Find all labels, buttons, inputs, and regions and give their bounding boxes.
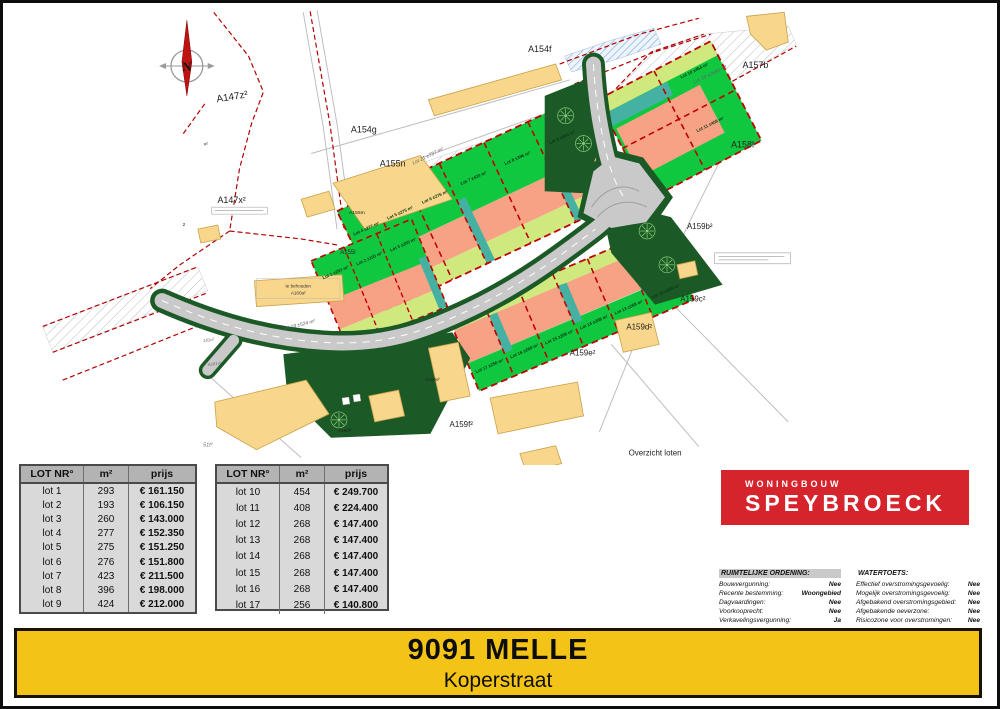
cell-m2: 260	[84, 512, 129, 526]
cell-lot: lot 3	[21, 512, 84, 526]
map-label: A160x²	[425, 377, 440, 382]
legend-watertoets: WATERTOETS: Effectief overstromingsgevoe…	[856, 569, 980, 625]
cell-prijs: € 212.000	[129, 598, 195, 612]
table-row: lot 7 423 € 211.500	[21, 569, 195, 583]
table-body: lot 10 454 € 249.700 lot 11 408 € 224.40…	[217, 484, 387, 614]
legend-value: Nee	[829, 607, 841, 616]
table-row: lot 15 268 € 147.400	[217, 565, 387, 581]
cell-prijs: € 152.350	[129, 527, 195, 541]
legend-row: Mogelijk overstromingsgevoelig: Nee	[856, 589, 980, 598]
map-label: A155n	[380, 158, 406, 168]
legend-label: Dagvaardingen:	[719, 598, 766, 607]
legend-rows: Effectief overstromingsgevoelig: Nee Mog…	[856, 580, 980, 625]
cell-m2: 268	[280, 549, 325, 565]
cell-m2: 423	[84, 569, 129, 583]
map-label: A157b	[743, 60, 769, 70]
legend-value: Woongebied	[802, 589, 841, 598]
table-header: LOT NR° m² prijs	[217, 466, 387, 484]
col-m2: m²	[84, 466, 129, 482]
cell-m2: 256	[280, 597, 325, 613]
map-label: A154g	[351, 125, 377, 135]
cell-prijs: € 147.400	[325, 533, 387, 549]
cell-prijs: € 151.250	[129, 541, 195, 555]
cell-m2: 293	[84, 484, 129, 498]
legend-value: Nee	[829, 598, 841, 607]
cell-prijs: € 140.800	[325, 597, 387, 613]
cell-lot: lot 2	[21, 498, 84, 512]
table-row: lot 16 268 € 147.400	[217, 581, 387, 597]
col-lot-nr: LOT NR°	[21, 466, 84, 482]
legend-row: Verkavelingsvergunning: Ja	[719, 616, 841, 625]
address-banner: 9091 MELLE Koperstraat	[14, 628, 982, 698]
cell-lot: lot 14	[217, 549, 280, 565]
logo-line-woningbouw: WONINGBOUW	[745, 479, 969, 489]
legend-rows: Bouwvergunning: Nee Recente bestemming: …	[719, 580, 841, 625]
cell-m2: 268	[280, 565, 325, 581]
legend-value: Nee	[829, 580, 841, 589]
cell-prijs: € 151.800	[129, 555, 195, 569]
legend-title: WATERTOETS:	[856, 569, 980, 578]
cell-lot: lot 9	[21, 598, 84, 612]
legend-label: Afgebakend overstromingsgebied:	[856, 598, 956, 607]
cell-m2: 454	[280, 484, 325, 500]
banner-title: 9091 MELLE	[17, 634, 979, 667]
cell-lot: lot 1	[21, 484, 84, 498]
legend-value: Nee	[968, 607, 980, 616]
cell-prijs: € 249.700	[325, 484, 387, 500]
cell-prijs: € 147.400	[325, 565, 387, 581]
table-body: lot 1 293 € 161.150 lot 2 193 € 106.150 …	[21, 484, 195, 612]
legend-row: Recente bestemming: Woongebied	[719, 589, 841, 598]
legend-row: Dagvaardingen: Nee	[719, 598, 841, 607]
legend-row: Voorkooprecht: Nee	[719, 607, 841, 616]
table-row: lot 5 275 € 151.250	[21, 541, 195, 555]
table-row: lot 11 408 € 224.400	[217, 500, 387, 516]
plan-sheet: A154fA157bA147z²A154gA155nA158lA147x²A15…	[0, 0, 1000, 709]
cell-m2: 396	[84, 583, 129, 597]
legend-ruimtelijke-ordening: RUIMTELIJKE ORDENING: Bouwvergunning: Ne…	[719, 569, 841, 625]
map-label: A159c²	[680, 295, 706, 304]
legend-value: Nee	[968, 616, 980, 625]
table-header: LOT NR° m² prijs	[21, 466, 195, 484]
table-row: lot 8 396 € 198.000	[21, 583, 195, 597]
map-label: te behouden	[286, 284, 312, 289]
col-m2: m²	[280, 466, 325, 482]
legend-label: Mogelijk overstromingsgevoelig:	[856, 589, 950, 598]
legend-row: Afgebakende oeverzone: Nee	[856, 607, 980, 616]
map-label: A160f²	[338, 428, 352, 433]
map-label: 2	[183, 222, 186, 228]
cell-prijs: € 147.400	[325, 581, 387, 597]
map-label: A160a²	[291, 291, 306, 296]
cell-m2: 268	[280, 581, 325, 597]
map-label: A159b²	[687, 222, 713, 231]
cell-m2: 277	[84, 527, 129, 541]
map-label: A147x²	[217, 195, 245, 205]
legend-value: Nee	[968, 598, 980, 607]
cell-prijs: € 147.400	[325, 549, 387, 565]
legend-label: Recente bestemming:	[719, 589, 783, 598]
map-label: 51t²	[203, 443, 213, 449]
cell-m2: 193	[84, 498, 129, 512]
cell-lot: lot 4	[21, 527, 84, 541]
col-prijs: prijs	[325, 466, 387, 482]
cell-prijs: € 211.500	[129, 569, 195, 583]
legend-value: Ja	[834, 616, 841, 625]
map-label: N	[182, 59, 192, 74]
cell-lot: lot 11	[217, 500, 280, 516]
map-label: A155l	[340, 250, 355, 256]
logo-line-speybroeck: SPEYBROECK	[745, 490, 969, 517]
cell-lot: lot 6	[21, 555, 84, 569]
map-label: A159d²	[626, 322, 652, 331]
table-row: lot 10 454 € 249.700	[217, 484, 387, 500]
legend-label: Verkavelingsvergunning:	[719, 616, 791, 625]
table-row: lot 2 193 € 106.150	[21, 498, 195, 512]
legend-row: Effectief overstromingsgevoelig: Nee	[856, 580, 980, 589]
legend-label: Bouwvergunning:	[719, 580, 770, 589]
legend-row: Bouwvergunning: Nee	[719, 580, 841, 589]
cell-lot: lot 8	[21, 583, 84, 597]
cell-m2: 408	[280, 500, 325, 516]
table-row: lot 6 276 € 151.800	[21, 555, 195, 569]
legend-value: Nee	[968, 589, 980, 598]
table-row: lot 1 293 € 161.150	[21, 484, 195, 498]
cell-lot: lot 7	[21, 569, 84, 583]
site-plan-map: A154fA157bA147z²A154gA155nA158lA147x²A15…	[3, 3, 997, 465]
company-logo: WONINGBOUW SPEYBROECK	[721, 470, 969, 525]
map-label: A159f²	[450, 420, 474, 429]
legend-label: Effectief overstromingsgevoelig:	[856, 580, 949, 589]
cell-m2: 424	[84, 598, 129, 612]
legend-title: RUIMTELIJKE ORDENING:	[719, 569, 841, 578]
cell-lot: lot 12	[217, 516, 280, 532]
cell-lot: lot 17	[217, 597, 280, 613]
legend-label: Voorkooprecht:	[719, 607, 763, 616]
cell-prijs: € 198.000	[129, 583, 195, 597]
cell-prijs: € 106.150	[129, 498, 195, 512]
cell-prijs: € 147.400	[325, 516, 387, 532]
cell-m2: 275	[84, 541, 129, 555]
col-prijs: prijs	[129, 466, 195, 482]
map-label: A154f	[528, 44, 552, 54]
cell-m2: 268	[280, 533, 325, 549]
table-row: lot 3 260 € 143.000	[21, 512, 195, 526]
map-label: A155m	[349, 210, 365, 216]
table-row: lot 13 268 € 147.400	[217, 533, 387, 549]
table-row: lot 9 424 € 212.000	[21, 598, 195, 612]
cell-lot: lot 15	[217, 565, 280, 581]
map-label: v²	[204, 142, 208, 148]
map-label: Overzicht loten	[629, 449, 682, 458]
cell-m2: 276	[84, 555, 129, 569]
cell-lot: lot 16	[217, 581, 280, 597]
price-table-lots-10-17: LOT NR° m² prijs lot 10 454 € 249.700 lo…	[215, 464, 389, 611]
legend-value: Nee	[968, 580, 980, 589]
legend-label: Risicozone voor overstromingen:	[856, 616, 952, 625]
table-row: lot 12 268 € 147.400	[217, 516, 387, 532]
cell-lot: lot 10	[217, 484, 280, 500]
col-lot-nr: LOT NR°	[217, 466, 280, 482]
cell-m2: 268	[280, 516, 325, 532]
banner-subtitle: Koperstraat	[17, 669, 979, 693]
table-row: lot 14 268 € 147.400	[217, 549, 387, 565]
cell-prijs: € 161.150	[129, 484, 195, 498]
cell-prijs: € 224.400	[325, 500, 387, 516]
legend-row: Risicozone voor overstromingen: Nee	[856, 616, 980, 625]
cell-prijs: € 143.000	[129, 512, 195, 526]
map-label: A158l	[731, 140, 754, 150]
price-table-lots-1-9: LOT NR° m² prijs lot 1 293 € 161.150 lot…	[19, 464, 197, 614]
legend-row: Afgebakend overstromingsgebied: Nee	[856, 598, 980, 607]
map-label: A159e²	[570, 348, 596, 357]
cell-lot: lot 5	[21, 541, 84, 555]
legend-label: Afgebakende oeverzone:	[856, 607, 929, 616]
table-row: lot 4 277 € 152.350	[21, 527, 195, 541]
cell-lot: lot 13	[217, 533, 280, 549]
table-row: lot 17 256 € 140.800	[217, 597, 387, 613]
